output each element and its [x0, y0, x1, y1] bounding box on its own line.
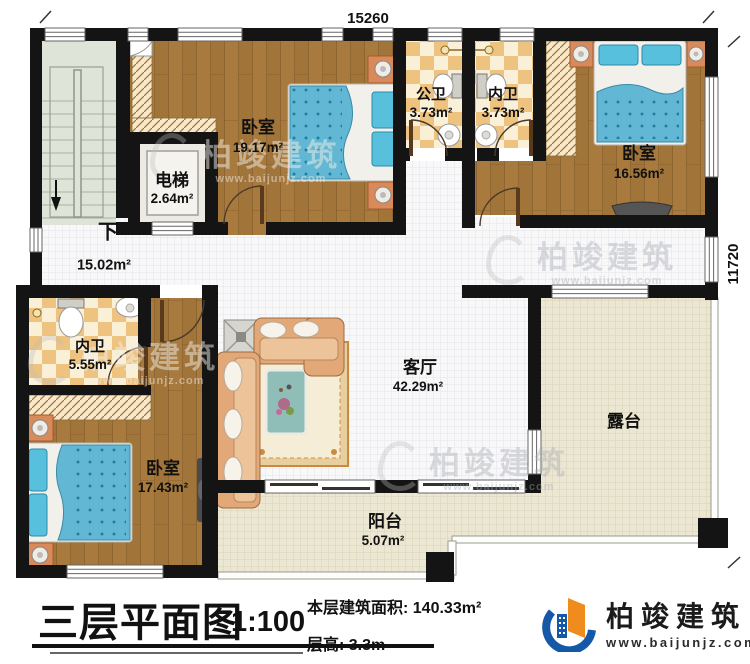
room-area-ensuite-top: 3.73m²: [482, 106, 525, 120]
room-area-balcony: 5.07m²: [362, 534, 405, 548]
room-label-balcony: 阳台: [368, 513, 402, 531]
floor-plan-drawing: [0, 0, 750, 592]
dimension-right: 11720: [726, 244, 742, 285]
floor-plan-page: 柏竣建筑 www.baijunjz.com 柏竣建筑 www.baijunjz.…: [0, 0, 750, 664]
plan-info: 本层建筑面积: 140.33m² 层高: 3.3m: [307, 594, 481, 664]
brand-name: 柏竣建筑: [606, 595, 750, 635]
room-label-bedroom-bottom-left: 卧室: [146, 460, 180, 478]
title-block: 三层平面图 1:100 本层建筑面积: 140.33m² 层高: 3.3m 柏竣…: [0, 592, 750, 664]
room-area-ensuite-bottom: 5.55m²: [69, 358, 112, 372]
room-label-ensuite-bottom: 内卫: [75, 339, 105, 355]
room-area-living-room: 42.29m²: [393, 380, 443, 394]
stairs-down-label: 下: [98, 223, 118, 244]
floor-height-text: 层高: 3.3m: [307, 631, 481, 655]
room-label-terrace: 露台: [607, 413, 641, 431]
room-label-elevator: 电梯: [155, 172, 189, 190]
room-label-bedroom-top-right: 卧室: [622, 145, 656, 163]
room-area-bedroom-top-left: 19.17m²: [233, 141, 283, 155]
floor-area-text: 本层建筑面积: 140.33m²: [307, 594, 481, 618]
brand-logo-icon: [540, 592, 598, 652]
room-label-bedroom-top-left: 卧室: [241, 119, 275, 137]
plan-scale: 1:100: [231, 606, 305, 639]
room-area-bedroom-bottom-left: 17.43m²: [138, 481, 188, 495]
room-label-living-room: 客厅: [403, 359, 437, 377]
room-label-ensuite-top: 内卫: [488, 87, 518, 103]
dimension-top: 15260: [347, 11, 389, 27]
brand-website: www.baijunjz.com: [606, 635, 750, 650]
title-underline-thin: [50, 652, 303, 654]
room-area-public-bath: 3.73m²: [410, 106, 453, 120]
plan-title: 三层平面图: [38, 590, 243, 648]
room-area-bedroom-top-right: 16.56m²: [614, 167, 664, 181]
stairwell: [42, 41, 116, 225]
brand-logo: 柏竣建筑 www.baijunjz.com: [540, 592, 750, 652]
room-label-public-bath: 公卫: [416, 87, 446, 103]
hallway-area-label: 15.02m²: [77, 258, 131, 273]
room-area-elevator: 2.64m²: [151, 192, 194, 206]
